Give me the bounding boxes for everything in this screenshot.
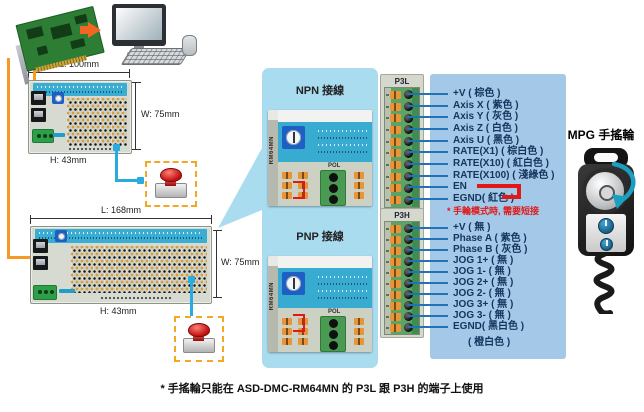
leader-line (408, 151, 448, 153)
estop-button (153, 168, 187, 198)
photo-top-strip (278, 256, 372, 268)
pin-label: JOG 2- ( 無 ) (453, 289, 511, 299)
dimension-label-height-1: H: 43mm (50, 155, 87, 165)
estop-cap (188, 323, 210, 337)
callout-wedge (210, 140, 266, 240)
chip (74, 14, 88, 25)
leader-line (408, 282, 448, 284)
leader-line (408, 140, 448, 142)
board-microtext (101, 297, 171, 299)
pin-label: +V ( 棕色 ) (453, 89, 501, 99)
rj45-port (33, 239, 48, 253)
en-note: * 手輪模式時, 需要短接 (447, 204, 539, 217)
pin-row: JOG 1+ ( 無 ) (408, 255, 527, 266)
pin-row: +V ( 無 ) (408, 222, 527, 233)
diagram-canvas: L: 100mm W: 75mm H: 43mm L: 168mm (0, 0, 644, 412)
pin-label: JOG 1+ ( 無 ) (453, 256, 513, 266)
dimension-label-width-1: W: 75mm (141, 109, 179, 119)
pin-row: JOG 2+ ( 無 ) (408, 277, 527, 288)
terminal-clamp (390, 280, 401, 288)
terminal-clamp (390, 173, 401, 181)
pin-label: Axis U ( 黑色 ) (453, 136, 519, 146)
monitor-icon (112, 4, 166, 46)
pin-row: Axis X ( 紫色 ) (408, 100, 555, 112)
en-short-bracket (502, 195, 521, 199)
mouse-icon (182, 35, 197, 56)
estop-wire-1 (115, 149, 118, 181)
estop-box-1 (145, 161, 197, 207)
orange-arrow-icon (88, 22, 101, 38)
chip (50, 23, 72, 39)
pin-row: Axis Y ( 灰色 ) (408, 111, 555, 123)
photo-top-strip (278, 110, 372, 122)
pin-label: EGND( 黑白色 ) (453, 322, 524, 332)
leader-line (408, 105, 448, 107)
dimension-line (216, 230, 217, 298)
dimension-label-width-2: W: 75mm (221, 257, 259, 267)
estop-cap (160, 168, 182, 182)
pin-row: Phase A ( 紫色 ) (408, 233, 527, 244)
terminal-clamp (390, 149, 401, 157)
terminal-column (282, 318, 292, 348)
terminal-clamp (390, 138, 401, 146)
dimension-line (30, 218, 212, 219)
terminal-clamp (390, 291, 401, 299)
leader-line (408, 271, 448, 273)
rj45-port (31, 91, 46, 105)
terminal-column (354, 172, 364, 202)
power-connector (33, 285, 57, 300)
terminal-dot-field (67, 98, 127, 146)
module-board-2 (30, 226, 212, 304)
pin-label: Phase B ( 灰色 ) (453, 245, 527, 255)
terminal-clamp (390, 313, 401, 321)
pci-card (6, 0, 122, 93)
terminal-clamp (390, 91, 401, 99)
leader-line (408, 186, 448, 188)
power-connector (32, 129, 54, 143)
dimension-label-length-2: L: 168mm (90, 205, 152, 215)
pin-row: JOG 3- ( 無 ) (408, 310, 527, 321)
npn-title: NPN 接線 (262, 82, 378, 98)
pin-label: JOG 3+ ( 無 ) (453, 300, 513, 310)
terminal-clamp (390, 126, 401, 134)
terminal-clamp (390, 196, 401, 204)
pin-row: RATE(X10) ( 紅白色 ) (408, 158, 555, 170)
pin-label: Axis Z ( 白色 ) (453, 124, 518, 134)
rate-select-knob (600, 238, 613, 251)
pin-row: Phase B ( 灰色 ) (408, 244, 527, 255)
pin-label: Phase A ( 紫色 ) (453, 234, 527, 244)
terminal-clamp (390, 236, 401, 244)
leader-line (408, 93, 448, 95)
terminal-clamp (390, 247, 401, 255)
pin-label: JOG 3- ( 無 ) (453, 311, 511, 321)
rj45-port (33, 256, 48, 270)
pnp-title: PNP 接線 (262, 228, 378, 244)
chip (70, 38, 86, 49)
leader-line (408, 128, 448, 130)
leader-line (408, 227, 448, 229)
pol-label: POL (328, 163, 340, 169)
dimension-label-height-2: H: 43mm (100, 306, 137, 316)
pin-label: +V ( 無 ) (453, 223, 491, 233)
pin-row: Axis U ( 黑色 ) (408, 135, 555, 147)
leader-line (408, 238, 448, 240)
wire-endpoint (137, 177, 144, 184)
terminal-clamp (390, 225, 401, 233)
terminal-clamp (390, 258, 401, 266)
footnote: * 手搖輪只能在 ASD-DMC-RM64MN 的 P3L 跟 P3H 的端子上… (0, 380, 644, 396)
terminal-clamp (390, 302, 401, 310)
module-side-label: RM64MN (269, 136, 275, 164)
green-terminal-block (320, 316, 346, 352)
p3l-title: P3L (381, 75, 423, 87)
leader-line (408, 249, 448, 251)
p3h-title: P3H (381, 209, 423, 221)
rotary-switch (52, 92, 64, 104)
estop-wire-2 (190, 282, 193, 318)
terminal-column (354, 318, 364, 348)
chip (26, 26, 44, 40)
keyboard-icon (121, 48, 192, 65)
pin-row: RATE(X1) ( 棕白色 ) (408, 146, 555, 158)
rotary-switch (282, 272, 305, 295)
terminal-clamp (390, 103, 401, 111)
pin-label: RATE(X10) ( 紅白色 ) (453, 159, 549, 169)
pin-label: Axis Y ( 灰色 ) (453, 112, 518, 122)
dimension-line (135, 82, 136, 150)
pin-row: JOG 3+ ( 無 ) (408, 299, 527, 310)
wire-endpoint (113, 144, 120, 151)
coiled-cable (584, 252, 628, 314)
pin-row: Axis Z ( 白色 ) (408, 123, 555, 135)
pin-label: Axis X ( 紫色 ) (453, 101, 519, 111)
pin-row: RATE(X100) ( 淺綠色 ) (408, 170, 555, 182)
p3h-pin-list: +V ( 無 )Phase A ( 紫色 )Phase B ( 灰色 )JOG … (408, 222, 527, 332)
pin-label: RATE(X1) ( 棕白色 ) (453, 147, 543, 157)
leader-line (408, 116, 448, 118)
terminal-column (282, 172, 292, 202)
en-short-bracket (477, 184, 521, 188)
pin-label: JOG 2+ ( 無 ) (453, 278, 513, 288)
chip (37, 45, 49, 55)
leader-line (408, 293, 448, 295)
rotary-switch (55, 230, 67, 242)
dmcnet-wire-2 (7, 58, 10, 259)
terminal-clamp (390, 324, 401, 332)
estop-box-2 (174, 316, 224, 362)
pin-label: EN (453, 182, 467, 192)
leader-line (408, 175, 448, 177)
pin-row: +V ( 棕色 ) (408, 88, 555, 100)
terminal-clamp (390, 114, 401, 122)
delta-logo (53, 133, 65, 137)
pnp-red-jumper (293, 314, 305, 332)
delta-logo (59, 289, 75, 293)
estop-button (181, 323, 215, 353)
wire-endpoint (188, 276, 195, 283)
pin-row: EGND( 黑白色 ) (408, 321, 527, 332)
pin-row: JOG 1- ( 無 ) (408, 266, 527, 277)
leader-line (408, 304, 448, 306)
egnd-second-color-label: ( 橙白色 ) (468, 333, 510, 348)
rj45-port (31, 108, 46, 122)
module-board-1 (28, 80, 132, 154)
pnp-photo: RM64MN POL (268, 256, 372, 352)
terminal-clamp (390, 269, 401, 277)
terminal-clamp (390, 161, 401, 169)
leader-line (408, 198, 448, 200)
module-side-label: RM64MN (269, 282, 275, 310)
leader-line (408, 315, 448, 317)
green-terminal-block (320, 170, 346, 206)
terminal-clamp (390, 184, 401, 192)
mpg-title: MPG 手搖輪 (558, 126, 644, 143)
board-microtext (69, 148, 119, 150)
rotary-switch (282, 126, 305, 149)
axis-select-knob (598, 218, 614, 234)
terminal-dot-field (71, 246, 207, 293)
npn-red-jumper (293, 181, 305, 199)
leader-line (408, 326, 448, 328)
npn-photo: RM64MN POL (268, 110, 372, 206)
leader-line (408, 163, 448, 165)
rotation-arrow-icon (606, 156, 644, 212)
board-header (33, 83, 127, 96)
leader-line (408, 260, 448, 262)
pin-row: JOG 2- ( 無 ) (408, 288, 527, 299)
pol-label: POL (328, 309, 340, 315)
pin-label: RATE(X100) ( 淺綠色 ) (453, 171, 555, 181)
pin-label: JOG 1- ( 無 ) (453, 267, 511, 277)
